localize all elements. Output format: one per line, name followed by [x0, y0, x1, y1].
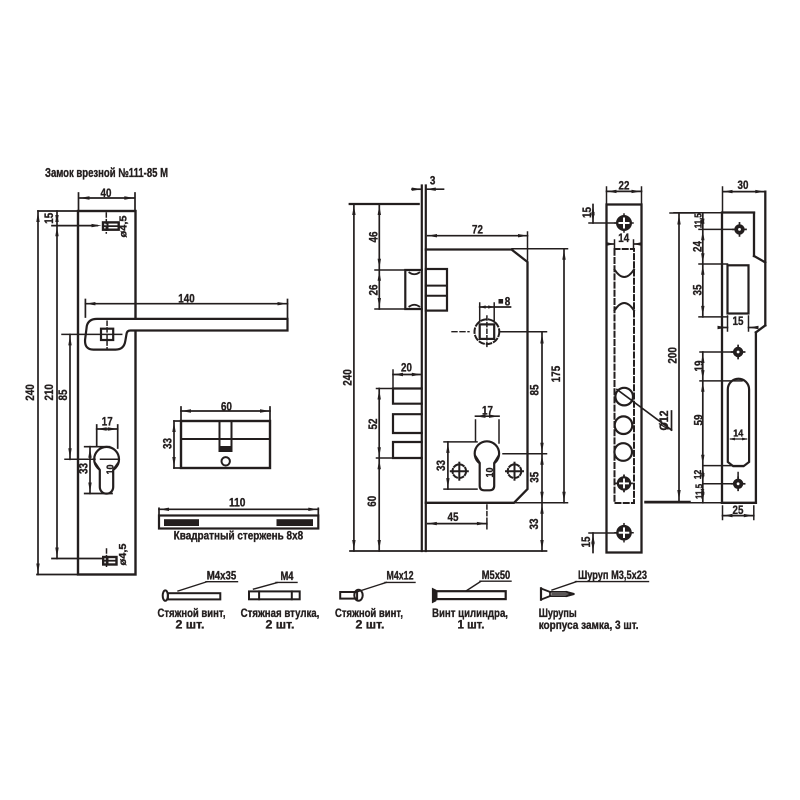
svg-text:12: 12: [693, 469, 704, 479]
svg-text:Шуруп М3,5х23: Шуруп М3,5х23: [578, 570, 647, 582]
svg-text:Стяжной винт,: Стяжной винт,: [335, 608, 403, 620]
svg-text:240: 240: [23, 384, 37, 401]
svg-text:14: 14: [618, 231, 629, 245]
svg-text:Стяжной винт,: Стяжной винт,: [158, 608, 226, 620]
svg-text:59: 59: [692, 414, 706, 425]
svg-text:ø4,5: ø4,5: [117, 543, 129, 565]
svg-text:33: 33: [527, 518, 541, 529]
svg-text:20: 20: [401, 361, 412, 375]
svg-text:60: 60: [221, 400, 232, 414]
svg-text:1 шт.: 1 шт.: [458, 620, 485, 632]
svg-text:15: 15: [579, 536, 593, 547]
svg-text:11,5: 11,5: [695, 484, 706, 499]
svg-text:140: 140: [178, 292, 195, 306]
svg-text:ø4,5: ø4,5: [118, 215, 130, 237]
svg-text:8: 8: [505, 295, 511, 309]
svg-text:33: 33: [161, 438, 175, 449]
svg-text:30: 30: [738, 178, 749, 192]
svg-text:52: 52: [366, 418, 380, 429]
svg-text:175: 175: [549, 366, 563, 383]
svg-text:60: 60: [365, 496, 379, 507]
svg-text:М4: М4: [281, 571, 294, 583]
svg-text:85: 85: [528, 384, 542, 395]
svg-text:15: 15: [42, 213, 56, 224]
svg-text:2 шт.: 2 шт.: [176, 620, 205, 632]
svg-text:2 шт.: 2 шт.: [266, 620, 295, 632]
svg-text:45: 45: [448, 510, 459, 524]
svg-text:М5х50: М5х50: [482, 570, 511, 582]
svg-text:200: 200: [666, 347, 680, 364]
svg-text:Квадратный стержень 8х8: Квадратный стержень 8х8: [174, 531, 304, 543]
svg-text:19: 19: [692, 360, 706, 371]
svg-text:Ø12: Ø12: [659, 411, 671, 431]
svg-text:33: 33: [77, 463, 91, 474]
svg-text:М4х12: М4х12: [387, 571, 414, 583]
svg-text:11,5: 11,5: [693, 213, 704, 228]
svg-text:33: 33: [434, 460, 448, 471]
svg-text:110: 110: [229, 496, 246, 510]
svg-text:46: 46: [366, 231, 380, 242]
svg-text:210: 210: [42, 384, 56, 401]
svg-text:Винт цилиндра,: Винт цилиндра,: [432, 608, 508, 620]
svg-text:15: 15: [580, 207, 594, 218]
svg-text:корпуса замка, 3 шт.: корпуса замка, 3 шт.: [539, 620, 639, 632]
svg-text:17: 17: [102, 415, 113, 429]
svg-text:3: 3: [430, 174, 436, 188]
svg-text:25: 25: [733, 503, 744, 517]
svg-text:2 шт.: 2 шт.: [356, 620, 385, 632]
svg-text:72: 72: [472, 223, 483, 237]
svg-text:240: 240: [341, 369, 355, 386]
svg-text:Стяжная втулка,: Стяжная втулка,: [241, 608, 320, 620]
svg-text:М4х35: М4х35: [207, 571, 237, 583]
svg-text:35: 35: [691, 284, 705, 295]
svg-text:22: 22: [619, 179, 630, 193]
svg-text:26: 26: [366, 284, 380, 295]
svg-text:85: 85: [56, 389, 70, 400]
svg-text:15: 15: [733, 314, 744, 328]
svg-text:40: 40: [101, 186, 112, 200]
svg-text:35: 35: [528, 472, 542, 483]
svg-text:17: 17: [482, 404, 493, 418]
svg-text:10: 10: [485, 467, 496, 477]
svg-text:10: 10: [106, 464, 117, 474]
svg-text:Шурупы: Шурупы: [539, 608, 577, 620]
svg-text:24: 24: [691, 241, 705, 252]
svg-text:Замок врезной №111-85 М: Замок врезной №111-85 М: [45, 166, 168, 180]
